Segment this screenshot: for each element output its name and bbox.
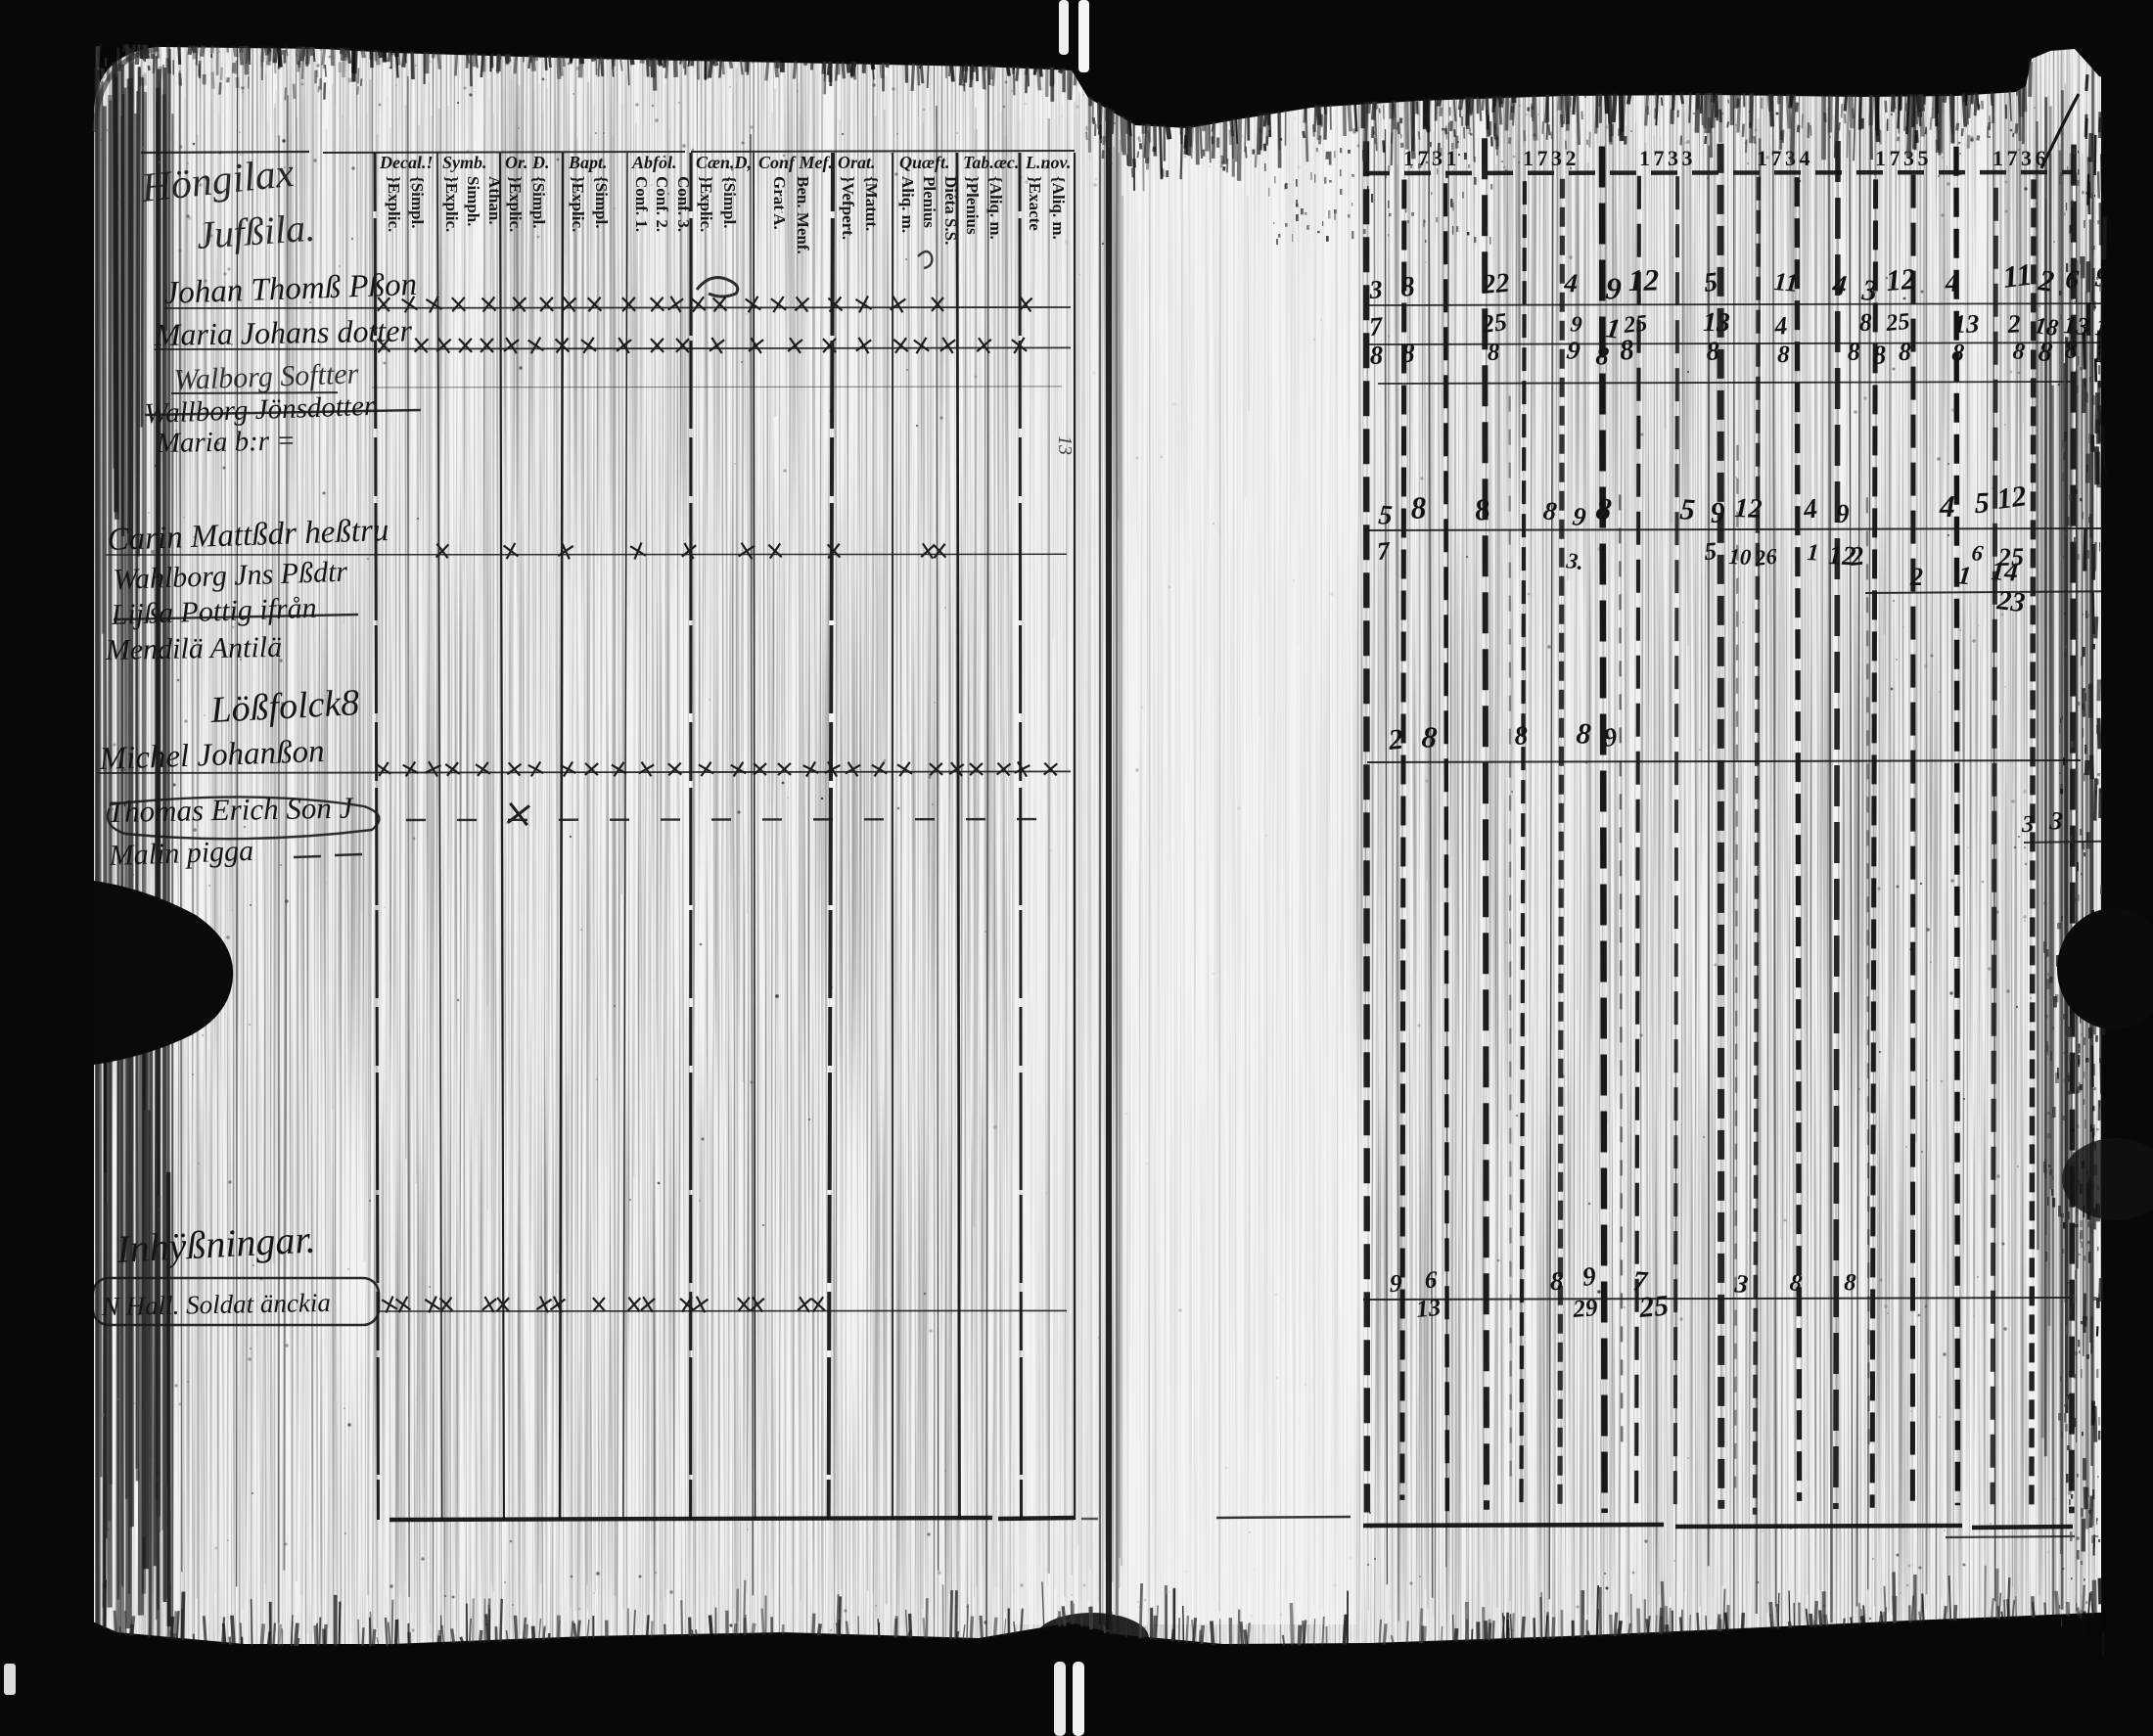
svg-text:5: 5 (1378, 500, 1394, 531)
svg-text:25: 25 (1884, 308, 1911, 337)
svg-text:6: 6 (1425, 1267, 1439, 1294)
svg-text:Athan.: Athan. (485, 176, 504, 225)
svg-text:}Vefpert.: }Vefpert. (839, 176, 857, 240)
svg-text:}Explic.: }Explic. (385, 176, 403, 232)
svg-text:8: 8 (1576, 716, 1592, 751)
svg-text:1733: 1733 (1639, 146, 1696, 170)
svg-text:14: 14 (1991, 555, 2019, 587)
svg-text:9: 9 (1389, 1269, 1402, 1298)
svg-text:11: 11 (1773, 267, 1800, 297)
svg-text:26: 26 (1753, 544, 1779, 571)
svg-text:11: 11 (2001, 257, 2035, 295)
svg-text:Maria Johans dotter: Maria Johans dotter (153, 312, 412, 352)
svg-text:8: 8 (1488, 340, 1500, 366)
svg-text:8: 8 (1420, 719, 1438, 754)
svg-text:22: 22 (1480, 268, 1511, 300)
svg-text:{Simpl.: {Simpl. (720, 176, 739, 228)
svg-text:Quæft.: Quæft. (899, 153, 950, 172)
svg-text:2: 2 (2006, 308, 2022, 339)
svg-text:Conf Mef.: Conf Mef. (758, 153, 833, 172)
svg-text:Bapt.: Bapt. (568, 153, 608, 172)
svg-text:Conf. 1.: Conf. 1. (632, 176, 651, 232)
svg-text:8: 8 (1400, 338, 1415, 368)
svg-text:8: 8 (1369, 341, 1383, 370)
svg-text:3.: 3. (1564, 548, 1584, 574)
svg-text:4: 4 (1830, 270, 1848, 301)
svg-text:Or. D.: Or. D. (505, 153, 550, 172)
svg-text:Diéta S.S.: Diéta S.S. (941, 176, 960, 245)
svg-text:Ben. Menf.: Ben. Menf. (794, 176, 812, 254)
svg-text:25: 25 (1479, 307, 1508, 339)
svg-text:12: 12 (1885, 262, 1917, 297)
svg-text:3: 3 (1367, 274, 1383, 304)
svg-text:9: 9 (1605, 271, 1623, 306)
svg-text:29: 29 (1571, 1295, 1599, 1323)
svg-text:Conf. 3.: Conf. 3. (674, 176, 693, 232)
svg-text:8: 8 (1706, 336, 1721, 366)
svg-text:3: 3 (1859, 273, 1878, 307)
svg-text:13: 13 (1952, 308, 1979, 339)
svg-text:4: 4 (1772, 311, 1788, 341)
svg-text:1732: 1732 (1523, 146, 1580, 170)
svg-text:Aliq. m.: Aliq. m. (898, 176, 917, 233)
svg-text:12: 12 (1734, 493, 1763, 525)
svg-text:Malin pigga: Malin pigga (108, 835, 254, 872)
svg-text:3: 3 (2048, 805, 2064, 836)
svg-text:12: 12 (1995, 480, 2029, 516)
svg-text:8: 8 (1951, 340, 1966, 367)
svg-text:Symb.: Symb. (442, 153, 487, 172)
svg-text:8: 8 (1847, 338, 1860, 366)
svg-text:5: 5 (1974, 485, 1990, 520)
svg-text:{Simpl.: {Simpl. (592, 176, 611, 228)
svg-text:{Simpl.: {Simpl. (408, 176, 427, 228)
svg-text:}Exacte: }Exacte (1026, 176, 1044, 231)
svg-text:}Explic.: }Explic. (506, 176, 525, 232)
svg-text:9: 9 (1835, 499, 1850, 528)
svg-text:12: 12 (1628, 263, 1660, 297)
svg-text:{Aliq. m.: {Aliq. m. (986, 176, 1005, 240)
svg-text:8: 8 (1594, 491, 1613, 526)
svg-text:8: 8 (1409, 490, 1427, 525)
svg-text:8: 8 (1859, 308, 1873, 337)
svg-text:5: 5 (1678, 492, 1696, 526)
svg-text:Orat.: Orat. (838, 153, 876, 172)
svg-text:2: 2 (1909, 563, 1923, 591)
svg-text:9: 9 (1710, 495, 1726, 529)
svg-text:8: 8 (1872, 340, 1888, 370)
svg-text:13: 13 (1415, 1295, 1442, 1323)
svg-text:5: 5 (1703, 536, 1718, 566)
svg-text:}Explic.: }Explic. (442, 176, 461, 232)
svg-text:{Simpl.: {Simpl. (529, 176, 548, 228)
svg-text:13: 13 (1054, 435, 1076, 455)
svg-text:4: 4 (1563, 268, 1579, 298)
svg-text:1735: 1735 (1875, 146, 1932, 170)
svg-text:4: 4 (1939, 489, 1955, 524)
svg-text:Mendilä Antilä: Mendilä Antilä (105, 631, 283, 666)
svg-text:1734: 1734 (1757, 146, 1813, 170)
svg-text:Conf. 2.: Conf. 2. (653, 176, 671, 232)
svg-text:Simph.: Simph. (464, 176, 482, 227)
svg-text:10: 10 (1728, 544, 1753, 570)
svg-text:8: 8 (1844, 1269, 1856, 1296)
svg-text:Jufßila.: Jufßila. (195, 206, 316, 257)
svg-text:}Explic.: }Explic. (697, 176, 715, 232)
svg-text:Cæn.D,: Cæn.D, (696, 153, 752, 172)
svg-text:8: 8 (1777, 342, 1790, 368)
svg-text:8: 8 (1513, 720, 1529, 751)
svg-text:Decal.!: Decal.! (379, 153, 433, 172)
svg-text:13: 13 (1703, 307, 1730, 338)
svg-text:{Aliq. m.: {Aliq. m. (1049, 176, 1068, 240)
svg-text:{Matut.: {Matut. (862, 176, 881, 231)
svg-text:}Explic.: }Explic. (569, 176, 587, 232)
svg-text:Plenius: Plenius (920, 176, 939, 228)
svg-text:Lößfolck8: Lößfolck8 (208, 682, 360, 731)
svg-text:Tab.æc.: Tab.æc. (963, 153, 1019, 172)
svg-text:L.nov.: L.nov. (1025, 153, 1071, 172)
svg-text:4: 4 (1944, 267, 1959, 297)
svg-text:}Plenius: }Plenius (963, 176, 982, 235)
svg-text:Grat A.: Grat A. (770, 176, 789, 230)
svg-text:8: 8 (1595, 341, 1610, 371)
svg-text:25: 25 (1637, 1290, 1671, 1325)
svg-text:N Hall. Soldat änckia: N Hall. Soldat änckia (101, 1288, 331, 1321)
svg-text:Walborg Softter: Walborg Softter (173, 357, 359, 396)
svg-text:Maria b:r =: Maria b:r = (156, 426, 297, 459)
svg-text:8: 8 (1550, 1266, 1564, 1296)
svg-text:3: 3 (2021, 811, 2034, 838)
svg-text:23: 23 (1994, 585, 2027, 618)
svg-text:1: 1 (1807, 539, 1820, 567)
svg-text:8: 8 (1899, 338, 1911, 366)
svg-text:Abfol.: Abfol. (631, 153, 677, 172)
